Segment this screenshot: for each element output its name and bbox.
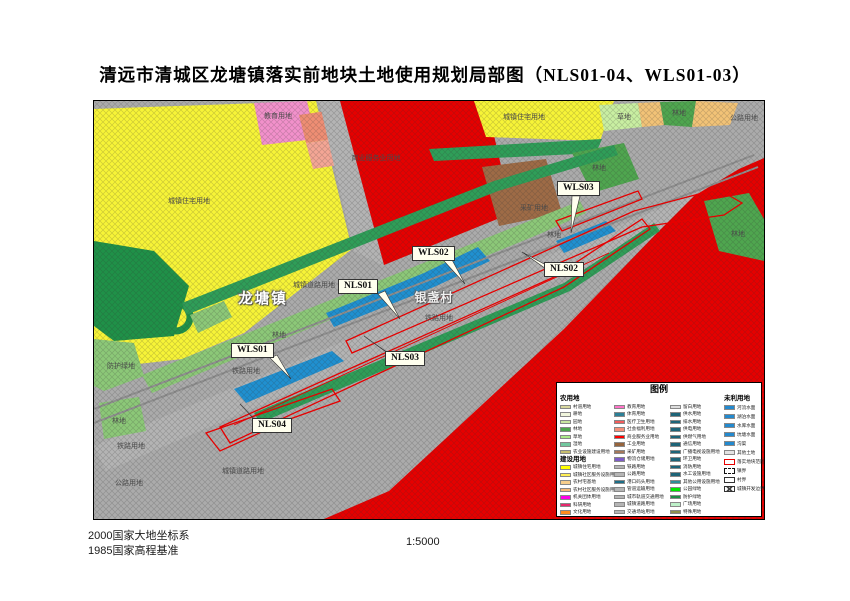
legend-item: 采矿用地	[614, 448, 670, 456]
legend-item: 城镇住宅用地	[560, 464, 614, 472]
legend-item: 城市轨道交通用地	[614, 493, 670, 501]
legend-label: 城市轨道交通用地	[627, 494, 664, 500]
legend-item: 留白用地	[670, 403, 724, 411]
legend-label: 城镇社区服务设施用地	[573, 472, 614, 478]
legend-item: 供电用地	[670, 426, 724, 434]
legend-item: 水工设施用地	[670, 471, 724, 479]
legend-label: 农业设施建设用地	[573, 449, 610, 455]
legend-label: 镇界	[737, 468, 746, 474]
legend-item: 社会福利用地	[614, 426, 670, 434]
legend-box: 图例 农用地村道用地耕地园地林地草地湿地农业设施建设用地建设用地城镇住宅用地城镇…	[556, 382, 762, 517]
legend-label: 铁路用地	[627, 464, 645, 470]
legend-swatch	[614, 457, 625, 462]
legend-item: 体育用地	[614, 411, 670, 419]
legend-label: 通信用地	[683, 441, 701, 447]
legend-item: 落实地块范围	[724, 457, 764, 466]
legend-item: 园地	[560, 418, 614, 426]
legend-swatch	[670, 510, 681, 515]
legend-title: 图例	[557, 384, 761, 395]
legend-label: 物流仓储用地	[627, 456, 655, 462]
legend-item: 物流仓储用地	[614, 456, 670, 464]
legend-swatch	[670, 420, 681, 425]
legend-column: 留白用地供水用地排水用地供电用地供燃气用地通信用地广播电视设施用地环卫用地消防用…	[670, 395, 724, 516]
legend-label: 公园绿地	[683, 486, 701, 492]
legend-swatch	[614, 435, 625, 440]
legend-item: 消防用地	[670, 463, 724, 471]
legend-swatch	[614, 405, 625, 410]
legend-label: 湿地	[573, 441, 582, 447]
legend-label: 村道用地	[573, 404, 591, 410]
legend-swatch	[670, 450, 681, 455]
legend-item: 广场用地	[670, 501, 724, 509]
legend-item: 坑塘水面	[724, 430, 764, 439]
legend-label: 管道运输用地	[627, 486, 655, 492]
legend-label: 商业服务业用地	[627, 434, 659, 440]
page-title: 清远市清城区龙塘镇落实前地块土地使用规划局部图（NLS01-04、WLS01-0…	[0, 62, 850, 87]
legend-label: 排水用地	[683, 419, 701, 425]
legend-section-header: 建设用地	[560, 456, 614, 464]
legend-item: 草地	[560, 433, 614, 441]
legend-swatch	[614, 450, 625, 455]
legend-item: 文化用地	[560, 509, 614, 517]
legend-item: 管道运输用地	[614, 486, 670, 494]
legend-swatch	[670, 405, 681, 410]
legend-swatch	[560, 495, 571, 500]
legend-swatch	[560, 405, 571, 410]
legend-label: 供燃气用地	[683, 434, 706, 440]
legend-item: 农业设施建设用地	[560, 448, 614, 456]
legend-swatch	[614, 420, 625, 425]
legend-label: 广场用地	[683, 501, 701, 507]
legend-columns: 农用地村道用地耕地园地林地草地湿地农业设施建设用地建设用地城镇住宅用地城镇社区服…	[557, 395, 761, 516]
legend-label: 机关团体用地	[573, 494, 601, 500]
legend-label: 供水用地	[683, 411, 701, 417]
legend-label: 城镇住宅用地	[573, 464, 601, 470]
legend-swatch	[560, 473, 571, 478]
legend-label: 其他公用设施用地	[683, 479, 720, 485]
legend-spacer	[670, 395, 724, 403]
legend-swatch	[724, 477, 735, 483]
legend-label: 湖泊水面	[737, 414, 755, 420]
legend-label: 防护绿地	[683, 494, 701, 500]
legend-swatch	[670, 502, 681, 507]
legend-item: 村道用地	[560, 403, 614, 411]
legend-spacer	[614, 395, 670, 403]
legend-swatch	[614, 487, 625, 492]
legend-label: 河流水面	[737, 405, 755, 411]
legend-label: 落实地块范围	[737, 459, 764, 465]
legend-label: 公路用地	[627, 471, 645, 477]
legend-item: 水库水面	[724, 421, 764, 430]
legend-swatch	[670, 472, 681, 477]
legend-label: 消防用地	[683, 464, 701, 470]
legend-item: 供水用地	[670, 411, 724, 419]
legend-label: 广播电视设施用地	[683, 449, 720, 455]
legend-item: 沟渠	[724, 439, 764, 448]
legend-swatch	[614, 502, 625, 507]
legend-label: 草地	[573, 434, 582, 440]
legend-item: 防护绿地	[670, 493, 724, 501]
legend-item: 林地	[560, 426, 614, 434]
datum-label-1: 2000国家大地坐标系	[88, 527, 189, 543]
legend-swatch	[670, 427, 681, 432]
legend-swatch	[670, 495, 681, 500]
legend-swatch	[614, 427, 625, 432]
legend-swatch	[560, 412, 571, 417]
legend-item: 工业用地	[614, 441, 670, 449]
legend-column: 未利用地河流水面湖泊水面水库水面坑塘水面沟渠其他土地落实地块范围镇界村界城镇开发…	[724, 395, 764, 516]
legend-label: 沟渠	[737, 441, 746, 447]
legend-swatch	[560, 420, 571, 425]
legend-swatch	[560, 510, 571, 515]
legend-item: 湖泊水面	[724, 412, 764, 421]
legend-swatch	[670, 465, 681, 470]
legend-label: 留白用地	[683, 404, 701, 410]
legend-item: 湿地	[560, 441, 614, 449]
legend-label: 城镇道路用地	[627, 501, 655, 507]
legend-swatch	[560, 480, 571, 485]
legend-item: 城镇社区服务设施用地	[560, 471, 614, 479]
legend-swatch	[614, 472, 625, 477]
legend-item: 农村宅基地	[560, 479, 614, 487]
legend-item: 广播电视设施用地	[670, 448, 724, 456]
legend-item: 城镇道路用地	[614, 501, 670, 509]
legend-item: 科研用地	[560, 501, 614, 509]
legend-section-header: 未利用地	[724, 395, 764, 403]
legend-column: 农用地村道用地耕地园地林地草地湿地农业设施建设用地建设用地城镇住宅用地城镇社区服…	[560, 395, 614, 516]
legend-swatch	[614, 480, 625, 485]
legend-item: 其他土地	[724, 448, 764, 457]
legend-item: 镇界	[724, 466, 764, 475]
legend-label: 环卫用地	[683, 456, 701, 462]
legend-item: 农村社区服务设施用地	[560, 486, 614, 494]
legend-item: 供燃气用地	[670, 433, 724, 441]
legend-swatch	[724, 423, 735, 428]
legend-label: 采矿用地	[627, 449, 645, 455]
legend-swatch	[560, 488, 571, 493]
legend-swatch	[670, 487, 681, 492]
legend-swatch	[724, 432, 735, 437]
planning-map-page: 清远市清城区龙塘镇落实前地块土地使用规划局部图（NLS01-04、WLS01-0…	[0, 0, 850, 601]
legend-swatch	[724, 459, 735, 465]
legend-label: 体育用地	[627, 411, 645, 417]
legend-swatch	[670, 435, 681, 440]
legend-label: 园地	[573, 419, 582, 425]
legend-item: 公路用地	[614, 471, 670, 479]
legend-label: 水工设施用地	[683, 471, 711, 477]
legend-item: 医疗卫生用地	[614, 418, 670, 426]
legend-label: 工业用地	[627, 441, 645, 447]
legend-swatch	[724, 441, 735, 446]
legend-label: 农村社区服务设施用地	[573, 487, 614, 493]
legend-item: 公园绿地	[670, 486, 724, 494]
legend-swatch	[614, 495, 625, 500]
legend-swatch	[724, 468, 735, 474]
legend-swatch	[560, 465, 571, 470]
map-frame: 教育用地城镇住宅用地商业服务业用地城镇住宅用地采矿用地草地林地公路用地林地林地林…	[93, 100, 765, 520]
legend-item: 特殊用地	[670, 508, 724, 516]
legend-label: 港口码头用地	[627, 479, 655, 485]
legend-item: 通信用地	[670, 441, 724, 449]
legend-swatch	[670, 412, 681, 417]
legend-label: 其他土地	[737, 450, 755, 456]
legend-swatch	[614, 442, 625, 447]
legend-label: 交通场站用地	[627, 509, 655, 515]
scale-label: 1:5000	[406, 536, 440, 548]
legend-swatch	[724, 450, 735, 455]
legend-item: 耕地	[560, 411, 614, 419]
legend-swatch	[670, 442, 681, 447]
legend-swatch	[724, 414, 735, 419]
legend-swatch	[560, 450, 571, 455]
legend-label: 特殊用地	[683, 509, 701, 515]
legend-label: 教育用地	[627, 404, 645, 410]
legend-item: 城镇开发边界	[724, 484, 764, 493]
legend-label: 村界	[737, 477, 746, 483]
legend-swatch	[560, 427, 571, 432]
legend-label: 社会福利用地	[627, 426, 655, 432]
legend-item: 教育用地	[614, 403, 670, 411]
legend-column: 教育用地体育用地医疗卫生用地社会福利用地商业服务业用地工业用地采矿用地物流仓储用…	[614, 395, 670, 516]
legend-label: 水库水面	[737, 423, 755, 429]
legend-item: 其他公用设施用地	[670, 478, 724, 486]
legend-swatch	[670, 457, 681, 462]
legend-label: 文化用地	[573, 509, 591, 515]
legend-label: 医疗卫生用地	[627, 419, 655, 425]
legend-item: 村界	[724, 475, 764, 484]
legend-item: 铁路用地	[614, 463, 670, 471]
legend-swatch	[724, 405, 735, 410]
legend-label: 科研用地	[573, 502, 591, 508]
legend-section-header: 农用地	[560, 395, 614, 403]
legend-swatch	[670, 480, 681, 485]
legend-swatch	[560, 503, 571, 508]
legend-item: 环卫用地	[670, 456, 724, 464]
datum-label-2: 1985国家高程基准	[88, 542, 178, 558]
legend-label: 供电用地	[683, 426, 701, 432]
legend-swatch	[724, 486, 735, 492]
legend-item: 河流水面	[724, 403, 764, 412]
legend-swatch	[560, 435, 571, 440]
legend-item: 商业服务业用地	[614, 433, 670, 441]
legend-label: 耕地	[573, 411, 582, 417]
legend-label: 城镇开发边界	[737, 486, 764, 492]
legend-item: 港口码头用地	[614, 478, 670, 486]
legend-swatch	[614, 465, 625, 470]
legend-swatch	[560, 442, 571, 447]
legend-swatch	[614, 412, 625, 417]
legend-label: 林地	[573, 426, 582, 432]
legend-label: 农村宅基地	[573, 479, 596, 485]
legend-item: 排水用地	[670, 418, 724, 426]
legend-swatch	[614, 510, 625, 515]
legend-item: 机关团体用地	[560, 494, 614, 502]
legend-label: 坑塘水面	[737, 432, 755, 438]
legend-item: 交通场站用地	[614, 508, 670, 516]
